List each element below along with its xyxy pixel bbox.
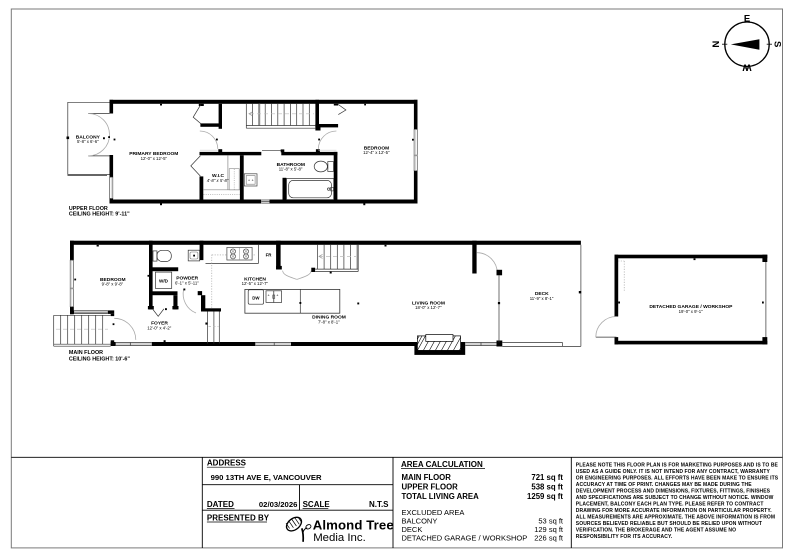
- svg-text:SCALE: SCALE: [303, 500, 331, 509]
- svg-text:12'-5" x 12'-7": 12'-5" x 12'-7": [242, 281, 269, 286]
- svg-text:W: W: [742, 62, 751, 73]
- svg-text:12'-0" x 12'-5": 12'-0" x 12'-5": [141, 156, 168, 161]
- svg-text:19'-0" x 9'-1": 19'-0" x 9'-1": [679, 309, 704, 314]
- svg-text:CEILING HEIGHT: 9'-11": CEILING HEIGHT: 9'-11": [69, 212, 130, 218]
- svg-text:5'-8" x 6'-6": 5'-8" x 6'-6": [77, 139, 99, 144]
- svg-text:RESPONSIBILITY FOR ITS ACCURAC: RESPONSIBILITY FOR ITS ACCURACY.: [576, 534, 673, 540]
- svg-text:4'-8" x 5'-8": 4'-8" x 5'-8": [207, 178, 229, 183]
- svg-text:1259 sq ft: 1259 sq ft: [527, 492, 563, 501]
- svg-text:PRESENTED BY: PRESENTED BY: [207, 513, 270, 522]
- svg-text:OR ENGINEERING PURPOSES. ALL E: OR ENGINEERING PURPOSES. ALL EFFORTS HAV…: [576, 475, 779, 481]
- svg-text:226 sq ft: 226 sq ft: [534, 533, 564, 542]
- svg-text:Media Inc.: Media Inc.: [313, 532, 366, 544]
- svg-text:N: N: [711, 41, 722, 48]
- svg-text:DRAWING FOR MORE ACCURATE INFO: DRAWING FOR MORE ACCURATE INFORMATION ON…: [576, 508, 772, 514]
- svg-text:N.T.S: N.T.S: [369, 500, 389, 509]
- svg-text:VERIFICATION. THE BROKERAGE AN: VERIFICATION. THE BROKERAGE AND THE AGEN…: [576, 527, 736, 533]
- svg-text:MAIN FLOOR: MAIN FLOOR: [402, 473, 452, 482]
- svg-text:12'-0" x 4'-2": 12'-0" x 4'-2": [147, 326, 172, 331]
- svg-text:W/D: W/D: [159, 279, 169, 284]
- svg-text:721 sq ft: 721 sq ft: [531, 473, 563, 482]
- svg-text:ACCURACY AT TIME OF PRINT. CHA: ACCURACY AT TIME OF PRINT. CHANGES MAY B…: [576, 482, 752, 488]
- svg-text:USED AS A GUIDE ONLY. IT IS NO: USED AS A GUIDE ONLY. IT IS NOT INTEND F…: [576, 469, 771, 475]
- svg-text:ADDRESS: ADDRESS: [207, 459, 247, 468]
- svg-text:DETACHED GARAGE / WORKSHOP: DETACHED GARAGE / WORKSHOP: [402, 533, 528, 542]
- svg-text:DEVELOPMENT PROCESS AND DIMENS: DEVELOPMENT PROCESS AND DIMENSIONS, FIXT…: [576, 488, 771, 494]
- svg-text:7'-8" x 8'-1": 7'-8" x 8'-1": [318, 320, 340, 325]
- svg-text:990 13TH AVE E, VANCOUVER: 990 13TH AVE E, VANCOUVER: [211, 473, 322, 482]
- svg-text:DATED: DATED: [207, 500, 234, 509]
- svg-text:18'-0" x 12'-7": 18'-0" x 12'-7": [415, 305, 442, 310]
- svg-text:CEILING HEIGHT: 10'-6": CEILING HEIGHT: 10'-6": [69, 356, 130, 362]
- svg-text:9'-8" x 9'-8": 9'-8" x 9'-8": [102, 281, 124, 286]
- svg-text:AREA CALCULATION: AREA CALCULATION: [401, 460, 483, 469]
- svg-text:PLEASE NOTE THIS FLOOR PLAN IS: PLEASE NOTE THIS FLOOR PLAN IS FOR MARKE…: [576, 462, 779, 468]
- svg-text:538 sq ft: 538 sq ft: [531, 482, 563, 491]
- svg-text:AND SPECIFICATIONS ARE SUBJECT: AND SPECIFICATIONS ARE SUBJECT TO CHANGE…: [576, 495, 774, 501]
- svg-text:E: E: [744, 13, 750, 24]
- svg-text:SOURCES BELIEVED RELIABLE BUT: SOURCES BELIEVED RELIABLE BUT SHOULD BE …: [576, 521, 762, 527]
- svg-text:PLACEMENT, BALCONY EACH PLAN T: PLACEMENT, BALCONY EACH PLAN TYPE. PLEAS…: [576, 501, 764, 507]
- svg-text:MAIN FLOOR: MAIN FLOOR: [69, 350, 103, 356]
- svg-text:TOTAL LIVING AREA: TOTAL LIVING AREA: [402, 492, 480, 501]
- svg-text:DW: DW: [252, 295, 260, 300]
- svg-text:+: +: [248, 179, 250, 183]
- svg-text:6'-1" x 5'-11": 6'-1" x 5'-11": [175, 280, 199, 285]
- svg-text:11'-8" x 5'-8": 11'-8" x 5'-8": [279, 167, 303, 172]
- svg-text:UPPER FLOOR: UPPER FLOOR: [402, 482, 459, 491]
- svg-text:11'-9" x 8'-1": 11'-9" x 8'-1": [530, 296, 554, 301]
- svg-text:S: S: [771, 41, 782, 47]
- svg-text:+: +: [252, 179, 254, 183]
- svg-text:12'-4" x 12'-5": 12'-4" x 12'-5": [363, 150, 390, 155]
- svg-text:02/03/2026: 02/03/2026: [259, 500, 297, 509]
- svg-text:Almond Tree: Almond Tree: [313, 517, 394, 532]
- svg-text:FR: FR: [266, 252, 273, 257]
- svg-text:ALL MEASUREMENTS ARE APPROXIMA: ALL MEASUREMENTS ARE APPROXIMATE. THE AB…: [576, 514, 775, 520]
